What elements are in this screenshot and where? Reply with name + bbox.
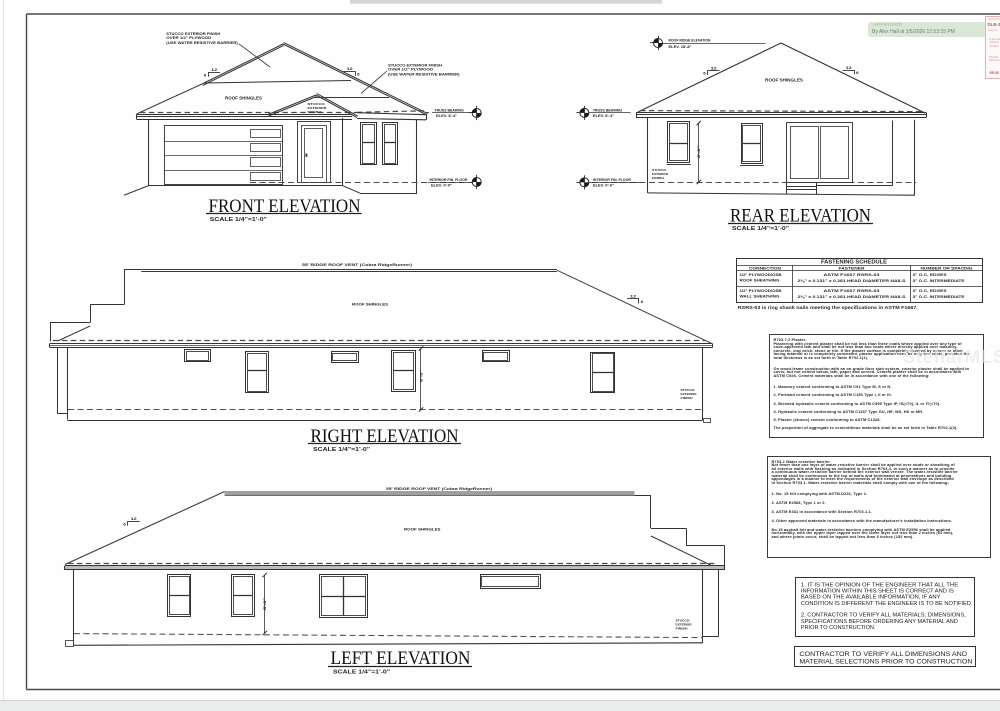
svg-text:NUMBER OR SPACING: NUMBER OR SPACING <box>921 265 973 270</box>
svg-text:SCALE 1/4"=1'-0": SCALE 1/4"=1'-0" <box>732 226 789 232</box>
svg-text:ASTM F1667 RSRS-03: ASTM F1667 RSRS-03 <box>824 272 881 277</box>
svg-text:12: 12 <box>211 68 217 72</box>
svg-text:ROOF SHEATHING: ROOF SHEATHING <box>740 277 780 282</box>
svg-text:3" O.C. EDGES: 3" O.C. EDGES <box>913 272 947 277</box>
svg-text:ELEV. 18'-8": ELEV. 18'-8" <box>669 45 692 49</box>
svg-text:6: 6 <box>123 523 126 527</box>
svg-text:FINISH: FINISH <box>652 176 665 180</box>
svg-text:2⅜" x 0.131" x 0.281 HEAD DIAM: 2⅜" x 0.131" x 0.281 HEAD DIAMETER NAILS <box>798 294 907 299</box>
svg-text:SCALE 1/4"=1'-0": SCALE 1/4"=1'-0" <box>210 217 267 223</box>
svg-text:6: 6 <box>357 73 360 77</box>
svg-text:12: 12 <box>846 66 852 70</box>
svg-text:55' RIDGE ROOF VENT (Cobra Rid: 55' RIDGE ROOF VENT (Cobra RidgeRunner) <box>386 486 493 491</box>
svg-text:MATERIAL SELECTIONS PRIOR TO C: MATERIAL SELECTIONS PRIOR TO CONSTRUCTIO… <box>799 659 972 666</box>
svg-text:SPECIFICATIONS BEFORE ORDERING: SPECIFICATIONS BEFORE ORDERING ANY MATER… <box>801 619 958 625</box>
svg-text:ELEV. 8'-4": ELEV. 8'-4" <box>436 114 457 118</box>
svg-text:INTERIOR FIN. FLOOR: INTERIOR FIN. FLOOR <box>593 178 632 182</box>
svg-text:6: 6 <box>641 300 644 304</box>
svg-text:6: 6 <box>204 74 207 78</box>
svg-text:FINISH: FINISH <box>308 110 323 114</box>
svg-text:CONNECTION: CONNECTION <box>749 265 781 270</box>
svg-text:OVER 1/2" PLYWOOD: OVER 1/2" PLYWOOD <box>388 68 433 72</box>
svg-text:PRIOR TO CONSTRUCTION.: PRIOR TO CONSTRUCTION. <box>801 625 876 631</box>
svg-text:CONTRACTOR TO VERIFY ALL DIMEN: CONTRACTOR TO VERIFY ALL DIMENSIONS AND <box>799 651 967 658</box>
svg-text:3" O.C. EDGES: 3" O.C. EDGES <box>913 288 947 293</box>
svg-text:ASTM F1667 RSRS-03: ASTM F1667 RSRS-03 <box>824 288 881 293</box>
svg-text:FINISH: FINISH <box>676 627 689 631</box>
svg-text:FINISH: FINISH <box>681 396 694 400</box>
svg-text:ROOF SHINGLES: ROOF SHINGLES <box>765 78 803 83</box>
svg-text:SCALE 1/4"=1'-0": SCALE 1/4"=1'-0" <box>313 447 370 453</box>
svg-text:OVER 1/2" PLYWOOD: OVER 1/2" PLYWOOD <box>166 36 211 40</box>
svg-text:3" O.C. INTERMEDIATE: 3" O.C. INTERMEDIATE <box>913 294 965 299</box>
svg-text:12: 12 <box>711 66 717 70</box>
svg-text:12: 12 <box>131 517 137 521</box>
svg-text:8'-0": 8'-0" <box>697 145 701 158</box>
svg-text:6: 6 <box>856 71 859 75</box>
svg-text:CONDITION IS DIFFERENT THE ENG: CONDITION IS DIFFERENT THE ENGINEER IS T… <box>801 601 973 607</box>
svg-text:SCALE 1/4"=1'-0": SCALE 1/4"=1'-0" <box>333 670 390 676</box>
svg-text:12: 12 <box>630 295 636 299</box>
svg-text:RSRS-03 is ring shank nails me: RSRS-03 is ring shank nails meeting the … <box>738 305 918 310</box>
svg-text:ELEV. 0'-0": ELEV. 0'-0" <box>593 184 614 188</box>
svg-text:FASTENER: FASTENER <box>839 265 865 270</box>
svg-text:6: 6 <box>703 72 706 76</box>
svg-text:55' RIDGE ROOF VENT (Cobra Rid: 55' RIDGE ROOF VENT (Cobra RidgeRunner) <box>302 262 413 267</box>
svg-text:TRUSS BEARING: TRUSS BEARING <box>593 108 623 112</box>
svg-text:(USE WATER RESISTIVE BARRIER): (USE WATER RESISTIVE BARRIER) <box>388 72 460 76</box>
svg-text:12: 12 <box>347 67 353 71</box>
svg-text:1. IT IS THE OPINION OF THE EN: 1. IT IS THE OPINION OF THE ENGINEER THA… <box>801 582 959 588</box>
svg-text:(USE WATER RESISTIVE BARRIER): (USE WATER RESISTIVE BARRIER) <box>166 41 238 45</box>
svg-text:ROOF SHINGLES: ROOF SHINGLES <box>225 96 262 101</box>
svg-text:ROOF SHINGLES: ROOF SHINGLES <box>352 302 388 307</box>
svg-text:2⅜" x 0.131" x 0.281 HEAD DIAM: 2⅜" x 0.131" x 0.281 HEAD DIAMETER NAILS <box>798 278 907 283</box>
svg-text:ROOF RIDGE ELEVATION: ROOF RIDGE ELEVATION <box>669 38 712 42</box>
svg-text:3" O.C. INTERMEDIATE: 3" O.C. INTERMEDIATE <box>913 278 965 283</box>
svg-text:8'-0": 8'-0" <box>263 597 267 610</box>
svg-text:BASED ON THE AVAILABLE INFORMA: BASED ON THE AVAILABLE INFORMATION, IF A… <box>801 595 941 601</box>
svg-text:ELEV. 8'-4": ELEV. 8'-4" <box>593 114 614 118</box>
svg-text:INTERIOR FIN. FLOOR: INTERIOR FIN. FLOOR <box>430 178 469 182</box>
svg-text:2. CONTRACTOR TO VERIFY ALL MA: 2. CONTRACTOR TO VERIFY ALL MATERIALS, D… <box>801 613 966 619</box>
svg-text:INFORMATION WITHIN THIS SHEET: INFORMATION WITHIN THIS SHEET IS CORRECT… <box>801 588 954 594</box>
svg-text:WALL SHEATHING: WALL SHEATHING <box>740 293 780 298</box>
svg-text:ROOF SHINGLES: ROOF SHINGLES <box>404 527 441 532</box>
svg-text:ELEV. 0'-0": ELEV. 0'-0" <box>431 184 452 188</box>
svg-text:TRUSS BEARING: TRUSS BEARING <box>435 108 465 112</box>
svg-text:8'-0": 8'-0" <box>419 369 423 382</box>
